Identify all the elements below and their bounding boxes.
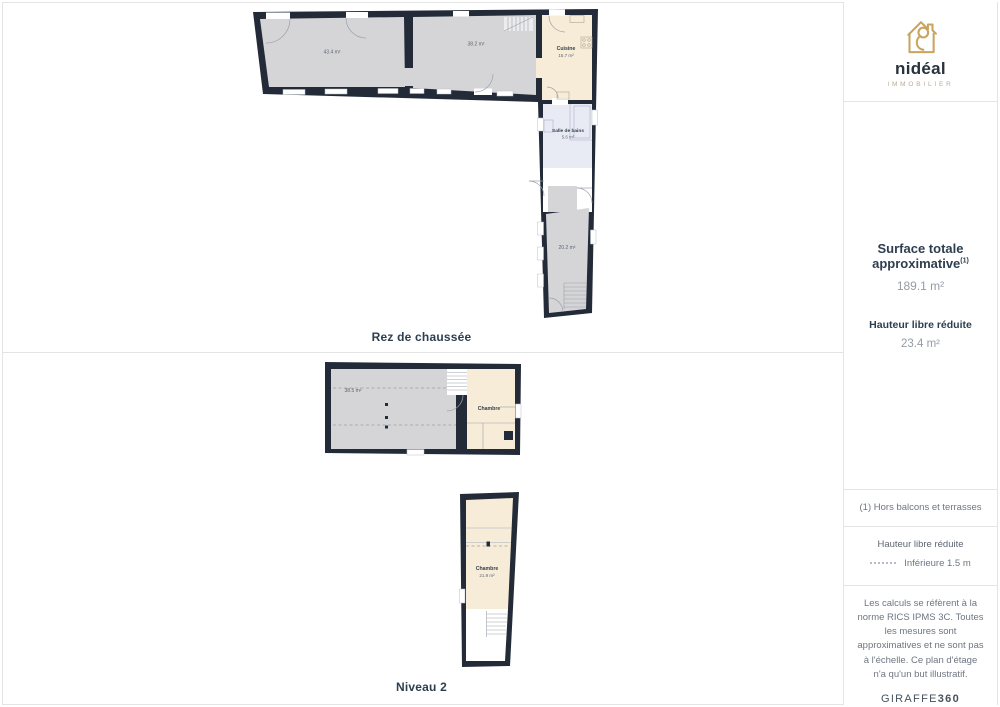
living-area-label: 43.4 m² — [324, 50, 341, 56]
bedroom1-name-label: Chambre — [478, 406, 501, 412]
ground-floor-title: Rez de chaussée — [0, 330, 843, 344]
stair-area — [466, 609, 508, 661]
surface-total-value: 189.1 m² — [897, 279, 944, 293]
landing-floor — [548, 186, 577, 212]
reduced-height-label: Hauteur libre réduite — [869, 319, 972, 331]
surface-title: Surface totale approximative(1) — [844, 241, 997, 271]
kitchen-name-label: Cuisine — [557, 46, 576, 52]
interior-wall — [456, 395, 467, 449]
chimney-block — [504, 431, 513, 440]
bedroom2-area-label: 21.9 m² — [479, 573, 495, 578]
sidebar: nidéal IMMOBILIER Surface totale approxi… — [844, 2, 997, 705]
dining-area-label: 38.2 m² — [468, 42, 485, 48]
reduced-height-value: 23.4 m² — [901, 338, 940, 350]
floor-plan-page: 43.4 m² 38.2 m² Cuisine 15.7 m² Salle de… — [0, 0, 1000, 707]
window-bedroom2 — [460, 589, 466, 603]
level2-upper-plan: 38.5 m² Chambre — [320, 358, 528, 458]
level2-lower-plan: Chambre 21.9 m² — [454, 487, 526, 671]
wall-nub — [487, 542, 491, 547]
brand-tagline: IMMOBILIER — [887, 81, 953, 88]
legend-row: Inférieure 1.5 m — [870, 558, 971, 569]
house-logo-icon — [898, 15, 944, 57]
brand-section: nidéal IMMOBILIER — [844, 2, 997, 102]
footnote-text: (1) Hors balcons et terrasses — [860, 502, 982, 513]
room-bedroom2 — [466, 498, 513, 609]
giraffe360-word: GIRAFFE — [881, 693, 938, 705]
kitchen-area-label: 15.7 m² — [558, 53, 574, 58]
brand-wordmark: nidéal — [895, 59, 946, 79]
level2-title: Niveau 2 — [0, 680, 843, 694]
room-open-space — [331, 369, 456, 449]
room-back — [546, 208, 589, 313]
bathroom-name-label: Salle de bains — [552, 128, 584, 134]
dashed-line-icon — [870, 562, 896, 564]
footnote-section: (1) Hors balcons et terrasses — [844, 490, 997, 527]
floors-divider — [3, 352, 843, 353]
surface-title-text: Surface totale approximative — [872, 241, 963, 271]
legend-section: Hauteur libre réduite Inférieure 1.5 m — [844, 527, 997, 586]
legend-item-text: Inférieure 1.5 m — [904, 558, 971, 569]
bathroom-area-label: 5.6 m² — [562, 135, 575, 140]
bedroom2-name-label: Chambre — [476, 566, 499, 572]
disclaimer-text: Les calculs se réfèrent à la norme RICS … — [857, 597, 984, 683]
surface-section: Surface totale approximative(1) 189.1 m²… — [844, 102, 997, 490]
legend-title: Hauteur libre réduite — [877, 539, 963, 550]
disclaimer-section: Les calculs se réfèrent à la norme RICS … — [844, 586, 997, 706]
giraffe360-number: 360 — [938, 693, 960, 705]
back-room-area-label: 20.2 m² — [559, 245, 576, 251]
surface-footnote-marker: (1) — [960, 258, 969, 265]
open-space-area-label: 38.5 m² — [345, 388, 362, 394]
living-dining-opening — [404, 68, 414, 86]
kitchen-opening — [536, 58, 542, 78]
giraffe360-logo: GIRAFFE360 — [881, 693, 960, 705]
ground-floor-plan: 43.4 m² 38.2 m² Cuisine 15.7 m² Salle de… — [243, 6, 605, 324]
staircase-upper — [504, 17, 533, 31]
